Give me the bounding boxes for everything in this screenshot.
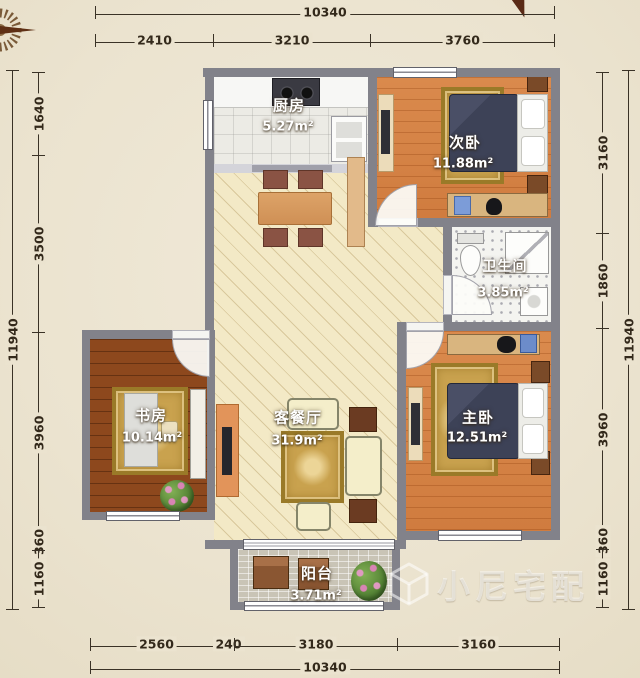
dim-value: 10340 bbox=[300, 4, 350, 19]
dim-left-total: 11940 bbox=[6, 70, 19, 610]
wall bbox=[203, 68, 560, 77]
wall bbox=[82, 330, 172, 339]
dim-value: 2560 bbox=[136, 636, 177, 651]
living-dining-area: 31.9m² bbox=[271, 434, 322, 449]
wall bbox=[368, 68, 377, 227]
pillow bbox=[521, 136, 545, 166]
master-monitor bbox=[411, 403, 420, 445]
nightstand bbox=[531, 361, 550, 383]
dim-bottom-segments: 2560 240 3180 3160 bbox=[90, 638, 560, 651]
balcony-sliding-door bbox=[243, 539, 395, 550]
dim-value: 1860 bbox=[595, 261, 610, 302]
end-table bbox=[349, 407, 377, 432]
pillow bbox=[522, 424, 544, 454]
wall bbox=[418, 218, 560, 227]
dim-value: 2410 bbox=[134, 32, 175, 47]
dim-segment: 1640 bbox=[32, 72, 45, 155]
wall bbox=[444, 322, 560, 331]
dim-segment: 3960 bbox=[32, 332, 45, 532]
nightstand bbox=[527, 175, 548, 195]
storage-box bbox=[253, 556, 289, 589]
dim-value: 3160 bbox=[458, 636, 499, 651]
master-bedroom-area: 12.51m² bbox=[447, 431, 507, 446]
balcony-area: 3.71m² bbox=[290, 589, 341, 604]
bag bbox=[486, 198, 502, 215]
dim-value: 3180 bbox=[296, 636, 337, 651]
dim-segment: 240 bbox=[222, 638, 234, 651]
dim-value: 10340 bbox=[300, 659, 350, 674]
dim-segment: 3160 bbox=[596, 72, 609, 233]
dim-value: 11940 bbox=[621, 315, 636, 365]
toilet-tank bbox=[457, 233, 484, 244]
bathroom-name: 卫生间 bbox=[483, 256, 528, 276]
dim-segment: 360 bbox=[32, 532, 45, 550]
end-table bbox=[349, 499, 377, 523]
floor-plan-canvas: 10340 2410 3210 3760 2560 240 3180 3160 … bbox=[0, 0, 640, 678]
bag bbox=[497, 336, 516, 353]
second-bedroom-area: 11.88m² bbox=[433, 157, 493, 172]
dim-segment: 11940 bbox=[622, 70, 635, 610]
window bbox=[106, 511, 180, 521]
dim-right-total: 11940 bbox=[622, 70, 635, 610]
dim-segment: 10340 bbox=[95, 6, 555, 19]
dim-segment: 2560 bbox=[90, 638, 222, 651]
watermark: 小尼宅配 bbox=[388, 560, 589, 608]
pillow bbox=[522, 388, 544, 418]
dim-segment: 3760 bbox=[370, 34, 555, 47]
potted-plant bbox=[160, 480, 194, 512]
study-cabinet bbox=[190, 389, 206, 479]
balcony-name: 阳台 bbox=[301, 563, 333, 584]
wall bbox=[82, 330, 90, 520]
dim-top-total: 10340 bbox=[95, 6, 555, 19]
dim-segment: 10340 bbox=[90, 661, 560, 674]
dim-value: 11940 bbox=[5, 315, 20, 365]
dim-value: 1640 bbox=[31, 94, 46, 135]
dining-chair bbox=[298, 170, 323, 189]
door-threshold bbox=[406, 322, 444, 331]
dim-segment: 3180 bbox=[234, 638, 397, 651]
dining-table bbox=[258, 192, 332, 225]
sofa bbox=[345, 436, 382, 496]
window bbox=[438, 530, 522, 541]
dim-segment: 3500 bbox=[32, 155, 45, 332]
dim-value: 3210 bbox=[272, 32, 313, 47]
study-area: 10.14m² bbox=[122, 431, 182, 446]
watermark-text: 小尼宅配 bbox=[437, 560, 589, 608]
wall bbox=[443, 227, 452, 275]
folded-shirt bbox=[520, 334, 537, 353]
wall bbox=[230, 549, 238, 610]
window bbox=[393, 67, 457, 78]
tall-cabinet bbox=[347, 157, 365, 247]
dim-segment: 1860 bbox=[596, 233, 609, 328]
laundry-basket bbox=[454, 196, 471, 215]
dining-chair bbox=[263, 228, 288, 247]
dining-chair bbox=[263, 170, 288, 189]
second-bedroom-name: 次卧 bbox=[449, 132, 481, 153]
dim-top-segments: 2410 3210 3760 bbox=[95, 34, 555, 47]
armchair bbox=[296, 502, 331, 531]
tv bbox=[222, 427, 232, 475]
kitchen-name: 厨房 bbox=[273, 95, 305, 116]
wall bbox=[551, 68, 560, 540]
door-threshold bbox=[443, 275, 452, 315]
dining-chair bbox=[298, 228, 323, 247]
second-bedroom-monitor bbox=[381, 110, 390, 154]
dim-segment: 360 bbox=[596, 531, 609, 549]
dim-value: 3960 bbox=[31, 412, 46, 453]
dim-segment: 1160 bbox=[32, 550, 45, 608]
cube-logo-icon bbox=[388, 561, 430, 607]
wall bbox=[397, 322, 406, 540]
dim-value: 3960 bbox=[595, 410, 610, 451]
dim-segment: 3960 bbox=[596, 328, 609, 531]
dim-bottom-total: 10340 bbox=[90, 661, 560, 674]
door-threshold bbox=[172, 330, 210, 339]
window bbox=[203, 100, 213, 150]
dim-segment: 3160 bbox=[397, 638, 560, 651]
dim-segment: 11940 bbox=[6, 70, 19, 610]
dim-left-segments: 1640 3500 3960 360 1160 bbox=[32, 72, 45, 608]
dim-value: 1160 bbox=[595, 558, 610, 599]
dim-right-segments: 3160 1860 3960 360 1160 bbox=[596, 72, 609, 608]
dim-value: 3160 bbox=[595, 133, 610, 174]
compass-rose-icon bbox=[0, 0, 36, 66]
dim-segment: 2410 bbox=[95, 34, 213, 47]
dim-value: 3500 bbox=[31, 224, 46, 265]
pillow bbox=[521, 99, 545, 129]
potted-plant bbox=[351, 561, 387, 601]
bathroom-area: 3.85m² bbox=[477, 286, 528, 301]
kitchen-area: 5.27m² bbox=[262, 120, 313, 135]
study-name: 书房 bbox=[135, 405, 167, 426]
dim-value: 3760 bbox=[442, 32, 483, 47]
kitchen-sink bbox=[331, 116, 367, 162]
master-bedroom-name: 主卧 bbox=[462, 407, 494, 428]
dim-segment: 3210 bbox=[213, 34, 370, 47]
dim-segment: 1160 bbox=[596, 549, 609, 608]
dim-value: 1160 bbox=[31, 559, 46, 600]
living-dining-name: 客餐厅 bbox=[274, 407, 322, 428]
